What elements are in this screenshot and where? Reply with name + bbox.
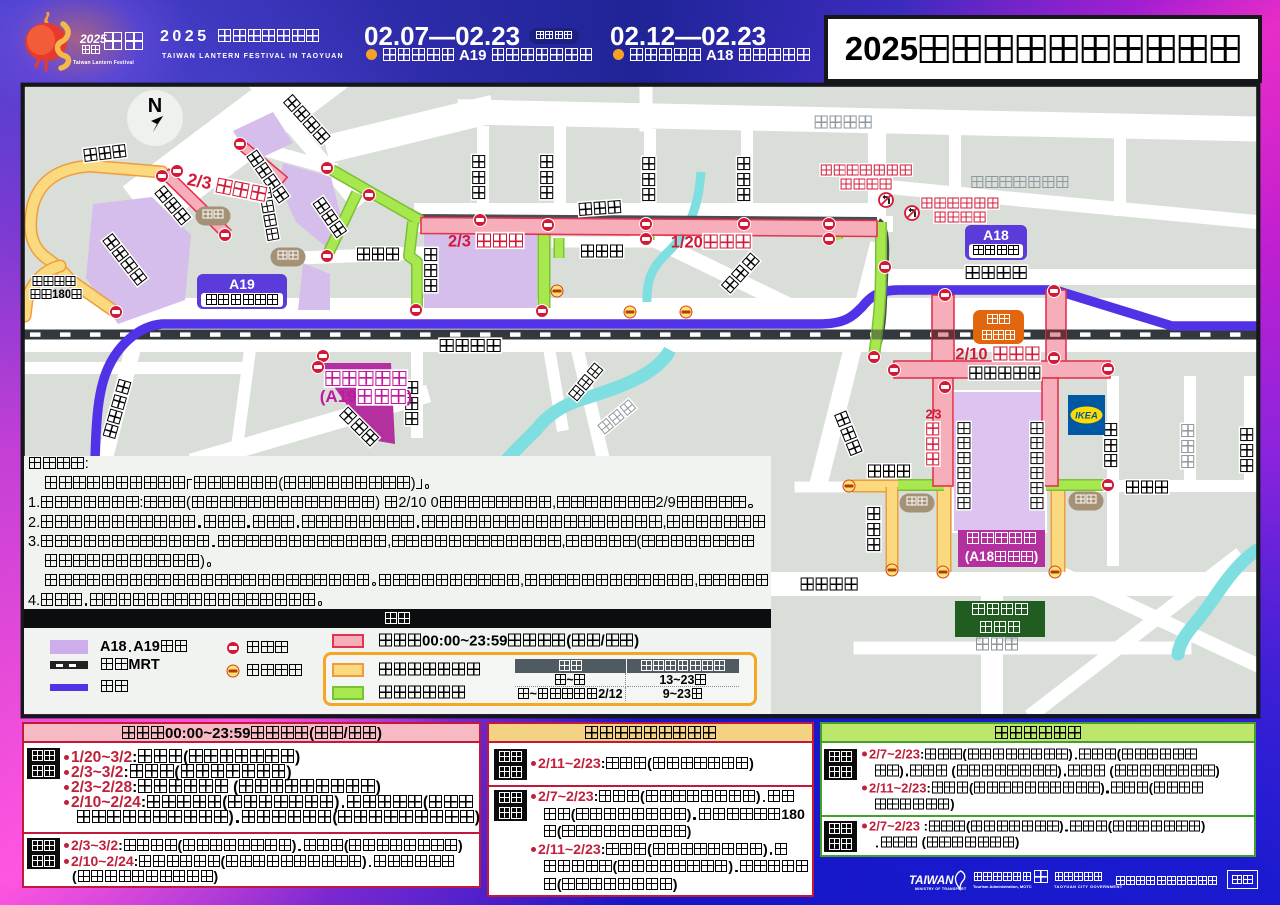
svg-text:N: N	[148, 95, 162, 117]
svg-text:IKEA: IKEA	[1075, 411, 1098, 422]
